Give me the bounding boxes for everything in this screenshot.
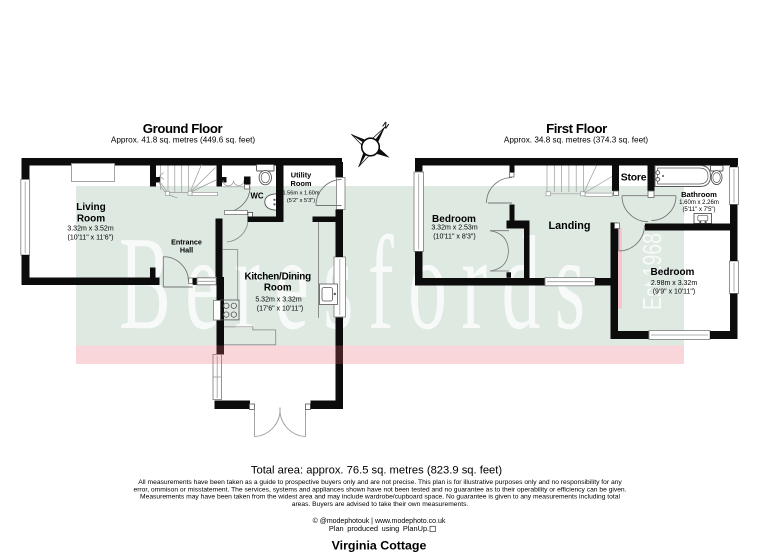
svg-text:(5'2" x 5'3"): (5'2" x 5'3"): [287, 198, 315, 204]
svg-text:error, ommison or misstatement: error, ommison or misstatement. The serv…: [133, 486, 626, 493]
svg-text:Approx. 34.8 sq. metres (374.3: Approx. 34.8 sq. metres (374.3 sq. feet): [504, 136, 649, 145]
svg-text:(17'6" x 10'11"): (17'6" x 10'11"): [257, 306, 303, 313]
svg-text:Total area: approx. 76.5 sq. m: Total area: approx. 76.5 sq. metres (823…: [251, 465, 503, 477]
svg-text:Room: Room: [291, 179, 312, 188]
svg-text:5.32m x 3.32m: 5.32m x 3.32m: [255, 297, 301, 304]
svg-text:First Floor: First Floor: [546, 121, 607, 136]
svg-text:1.56m x 1.60m: 1.56m x 1.60m: [283, 191, 320, 197]
svg-text:WC: WC: [251, 192, 264, 201]
svg-text:Bedroom: Bedroom: [651, 267, 695, 278]
svg-text:Living: Living: [76, 202, 105, 213]
svg-text:Hall: Hall: [180, 246, 193, 255]
svg-text:Store: Store: [621, 173, 647, 184]
svg-text:2.98m x 3.32m: 2.98m x 3.32m: [651, 280, 697, 287]
svg-text:Measurements may have been tak: Measurements may have been taken from th…: [140, 494, 620, 501]
svg-text:Landing: Landing: [549, 220, 591, 232]
svg-text:Room: Room: [264, 283, 292, 294]
svg-text:3.32m x 2.53m: 3.32m x 2.53m: [431, 225, 477, 232]
svg-text:3.32m x 3.52m: 3.32m x 3.52m: [67, 226, 113, 233]
svg-text:areas. Buyers are advised to t: areas. Buyers are advised to take their …: [292, 501, 469, 508]
svg-text:Kitchen/Dining: Kitchen/Dining: [245, 272, 312, 283]
svg-text:Bathroom: Bathroom: [681, 190, 717, 199]
svg-text:(9'9" x 10'11"): (9'9" x 10'11"): [653, 289, 696, 296]
svg-text:(10'11" x 8'3"): (10'11" x 8'3"): [433, 234, 476, 241]
svg-text:All measurements have been tak: All measurements have been taken as a gu…: [138, 479, 622, 486]
svg-text:(10'11" x 11'6"): (10'11" x 11'6"): [68, 235, 114, 242]
svg-text:Room: Room: [77, 214, 105, 225]
svg-text:Approx. 41.8 sq. metres (449.6: Approx. 41.8 sq. metres (449.6 sq. feet): [111, 136, 256, 145]
svg-text:Bedroom: Bedroom: [432, 214, 476, 225]
svg-text:1.60m x 2.26m: 1.60m x 2.26m: [679, 200, 719, 206]
svg-text:Ground Floor: Ground Floor: [143, 121, 223, 136]
svg-text:(5'11" x 7'5"): (5'11" x 7'5"): [682, 207, 715, 213]
svg-text:Plan produced using PlanUp.: Plan produced using PlanUp.: [329, 524, 429, 533]
svg-text:Virginia Cottage: Virginia Cottage: [332, 539, 427, 552]
